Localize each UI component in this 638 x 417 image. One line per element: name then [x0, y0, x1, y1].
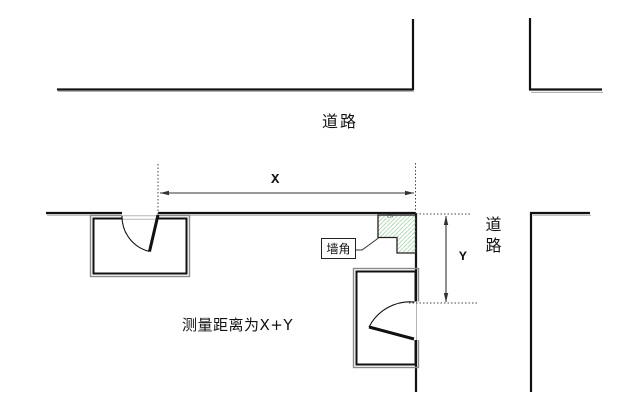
dimension-y: [444, 216, 448, 303]
dim-y-arrow-top: [444, 216, 448, 226]
left-door-opening: [122, 211, 158, 223]
hatched-wall-corner: [354, 215, 416, 253]
dim-y-label: Y: [459, 249, 467, 264]
right-room: [354, 269, 421, 368]
wall-corner-leader-line: [354, 238, 379, 250]
measurement-note: 测量距离为X+Y: [182, 314, 293, 335]
corner-tiny-mark: CA: [387, 214, 393, 219]
extension-lines: [158, 163, 478, 303]
right-door-opening: [411, 302, 421, 341]
diagram-linework: [0, 0, 638, 417]
left-room: [91, 211, 190, 277]
dim-x-arrow-left: [160, 191, 169, 195]
road-label-top: 道路: [322, 108, 358, 132]
dim-y-arrow-bottom: [444, 293, 448, 303]
right-door-swing-arc: [369, 302, 415, 327]
dim-x-arrow-right: [405, 191, 414, 195]
cad-sketch-canvas: 道路 道路 X Y 墙角 测量距离为X+Y CA: [0, 0, 638, 417]
road-edge-bottom-right: [530, 213, 591, 392]
wall-corner-label: 墙角: [326, 240, 350, 257]
dim-x-label: X: [271, 172, 279, 188]
road-label-right: 道路: [484, 215, 503, 256]
dimension-x: [160, 191, 414, 195]
wall-corner-callout-box: 墙角: [321, 238, 356, 259]
road-edge-top-right: [529, 18, 603, 92]
road-edge-top-left: [57, 19, 414, 91]
right-door-leaf: [369, 327, 414, 339]
